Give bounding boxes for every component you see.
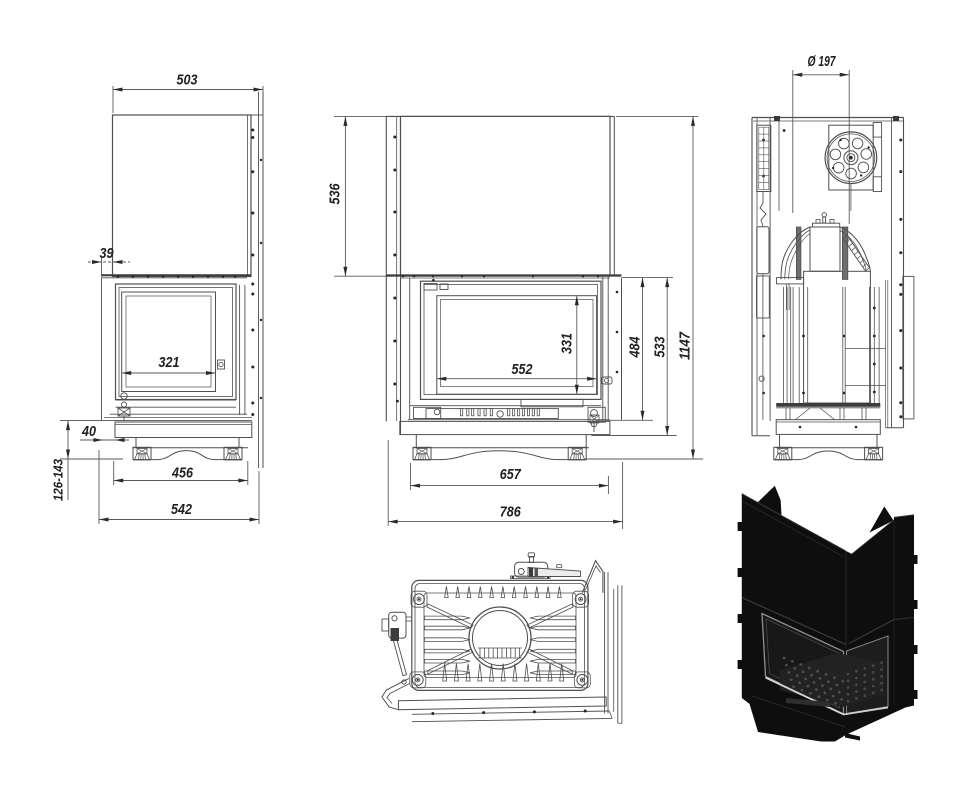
svg-text:1147: 1147 [678,331,694,360]
svg-text:321: 321 [159,355,180,371]
svg-text:40: 40 [81,424,96,440]
svg-text:Ø 197: Ø 197 [808,54,837,70]
svg-text:456: 456 [171,466,194,482]
svg-text:786: 786 [500,505,522,521]
svg-text:657: 657 [500,467,522,483]
svg-text:331: 331 [559,333,575,354]
svg-text:484: 484 [627,337,643,359]
svg-text:536: 536 [328,183,344,205]
svg-text:503: 503 [177,73,198,89]
svg-text:542: 542 [171,502,192,518]
svg-text:126-143: 126-143 [51,458,66,501]
svg-text:533: 533 [652,337,668,358]
svg-text:552: 552 [512,362,533,378]
